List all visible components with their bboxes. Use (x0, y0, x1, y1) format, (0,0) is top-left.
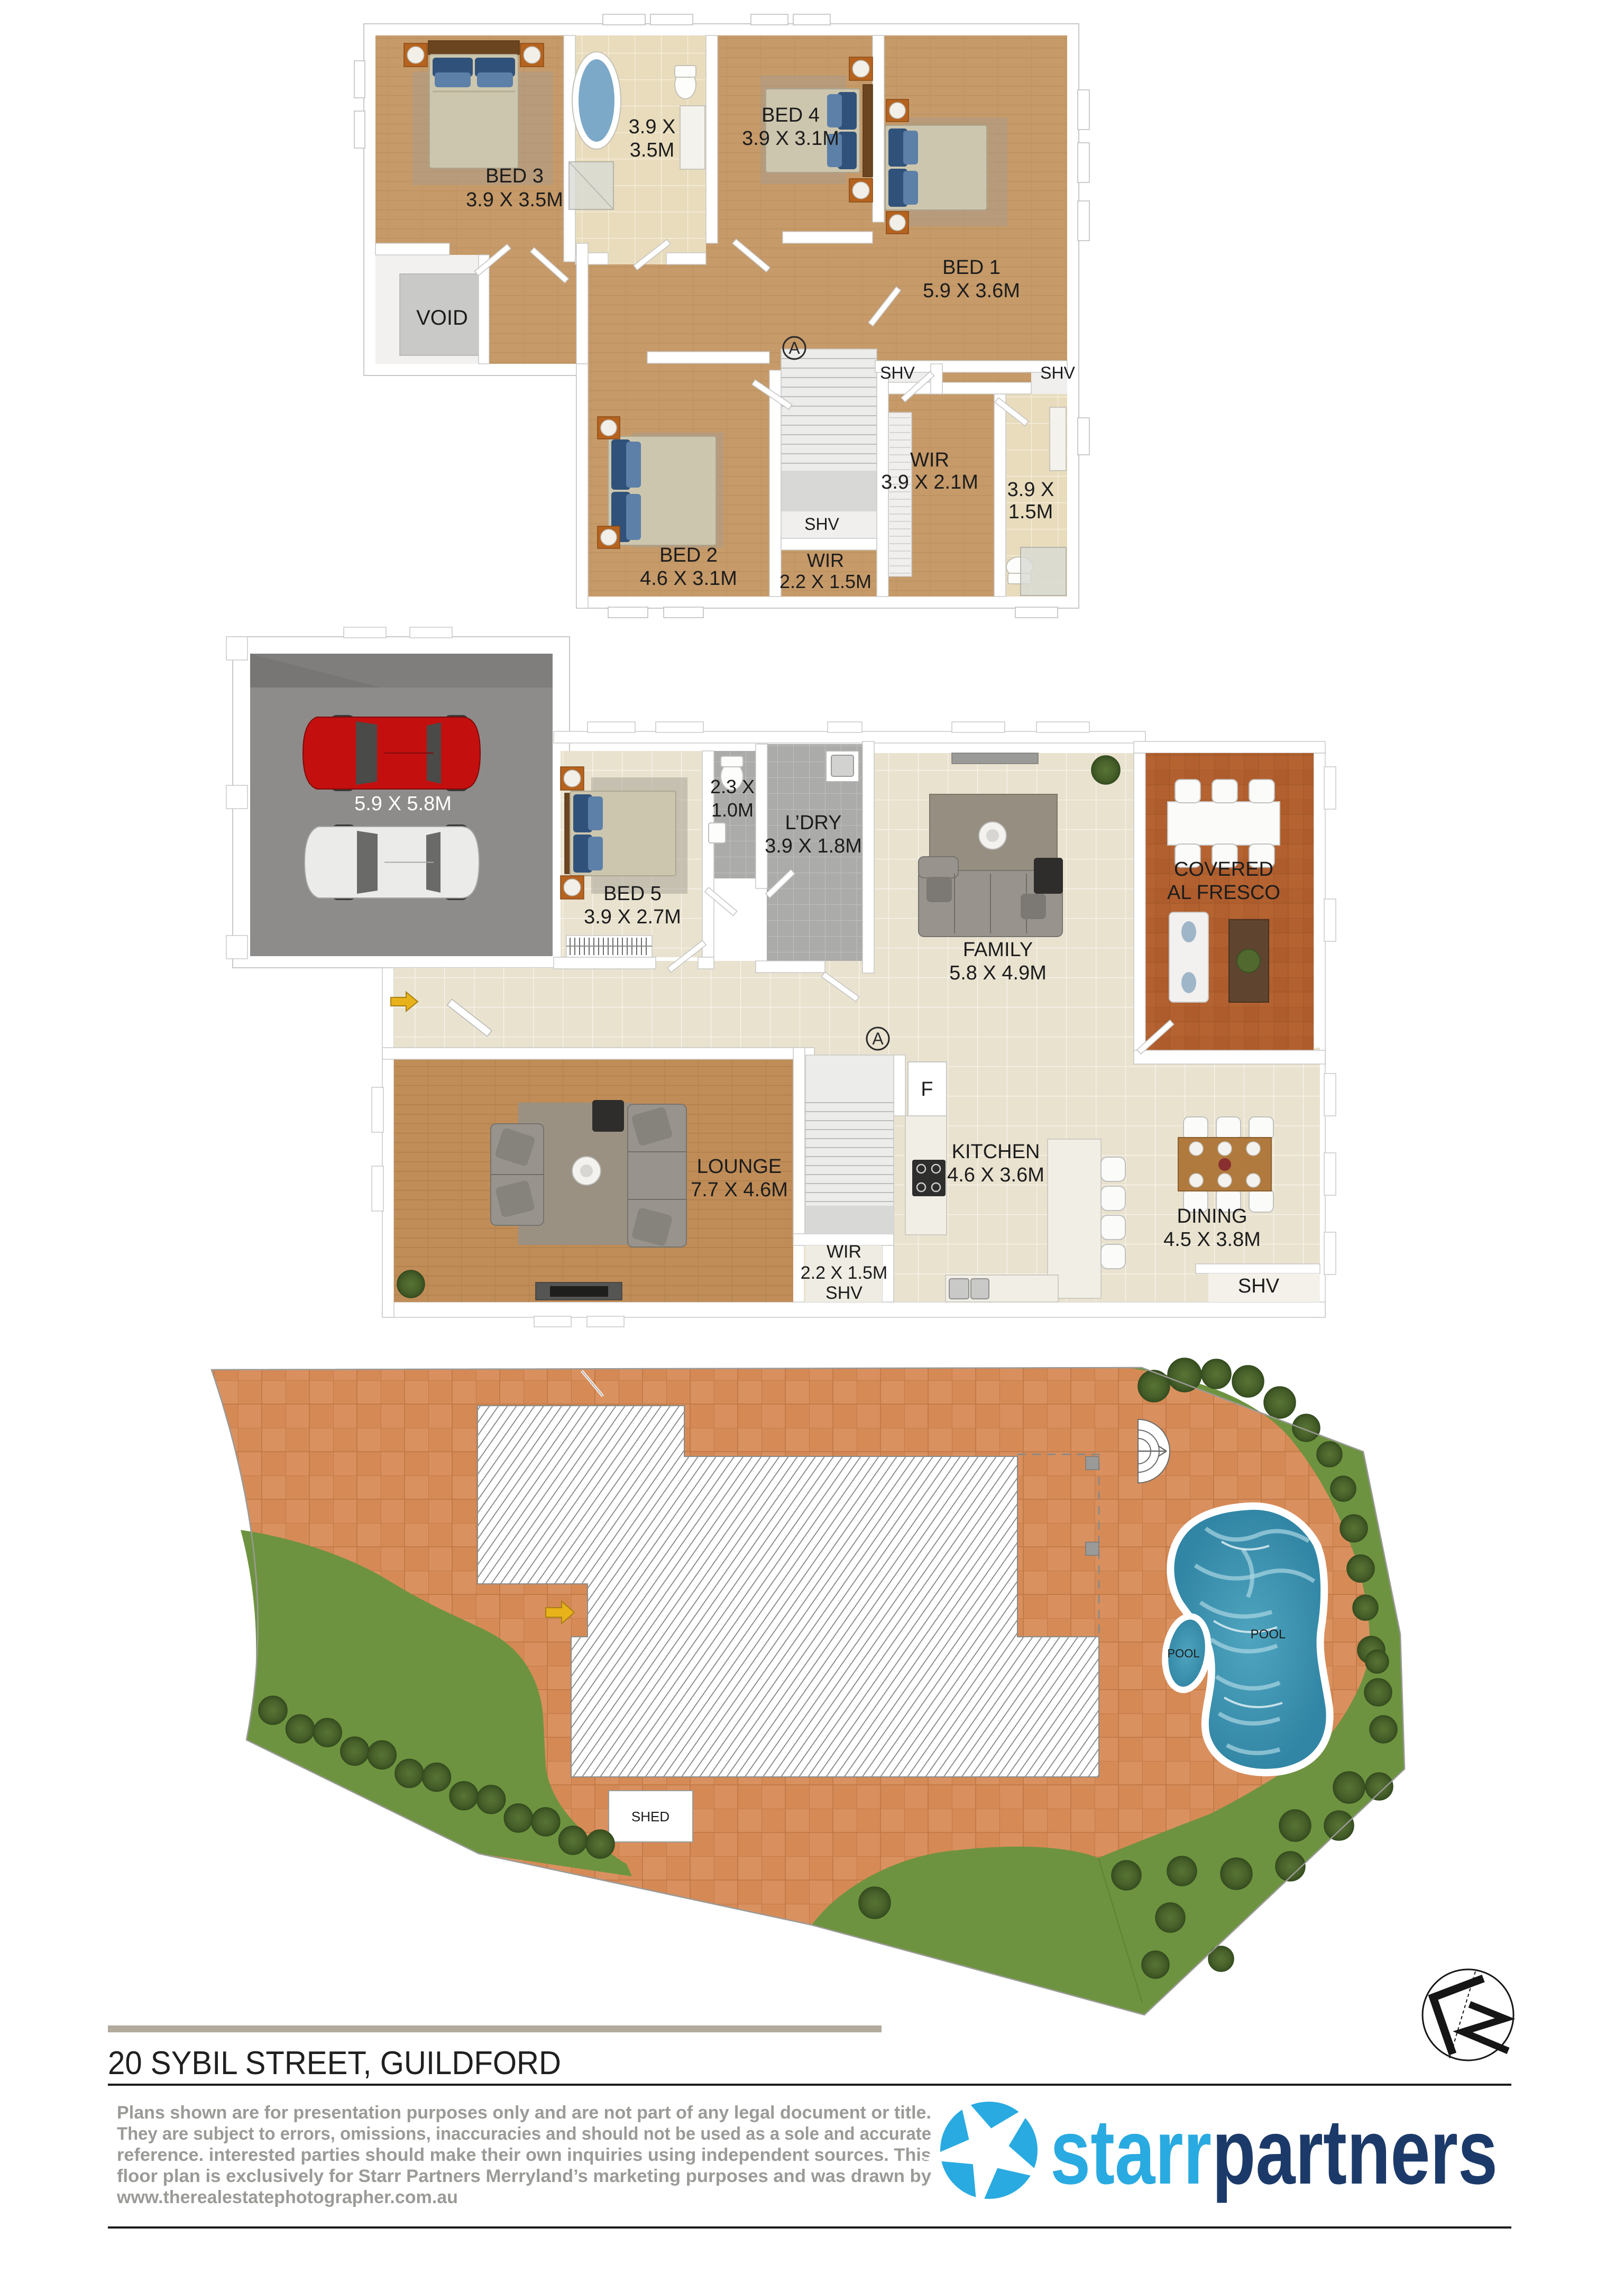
svg-text:2.2 X 1.5M: 2.2 X 1.5M (801, 1263, 887, 1283)
svg-text:3.9 X: 3.9 X (629, 116, 676, 138)
svg-text:SHED: SHED (631, 1809, 669, 1825)
svg-text:partners: partners (1212, 2101, 1498, 2204)
svg-text:3.9 X 3.5M: 3.9 X 3.5M (466, 189, 563, 211)
svg-text:VOID: VOID (416, 306, 468, 329)
svg-text:5.9 X 3.6M: 5.9 X 3.6M (923, 280, 1020, 302)
svg-text:20 SYBIL STREET, GUILDFORD: 20 SYBIL STREET, GUILDFORD (108, 2045, 561, 2082)
svg-text:1.0M: 1.0M (711, 799, 754, 821)
svg-text:KITCHEN: KITCHEN (952, 1141, 1040, 1163)
svg-text:BED 1: BED 1 (942, 256, 1001, 279)
svg-text:L’DRY: L’DRY (785, 812, 841, 834)
svg-text:5.9 X 5.8M: 5.9 X 5.8M (354, 793, 452, 815)
svg-text:3.9 X 2.1M: 3.9 X 2.1M (881, 471, 978, 493)
svg-text:They are subject to errors, om: They are subject to errors, omissions, i… (117, 2124, 931, 2144)
svg-text:www.therealestatephotographer.: www.therealestatephotographer.com.au (116, 2187, 458, 2207)
svg-text:BED 5: BED 5 (603, 883, 662, 905)
svg-text:2.2 X 1.5M: 2.2 X 1.5M (779, 571, 871, 592)
svg-text:3.9 X 1.8M: 3.9 X 1.8M (765, 835, 862, 857)
svg-text:SHV: SHV (1238, 1275, 1280, 1297)
svg-text:reference. interested partie: reference. interested parties should mak… (117, 2145, 931, 2165)
svg-text:WIR: WIR (807, 549, 844, 571)
svg-text:3.9 X 3.1M: 3.9 X 3.1M (742, 127, 839, 150)
svg-text:COVERED: COVERED (1174, 858, 1273, 881)
svg-text:2.3 X: 2.3 X (710, 776, 755, 797)
svg-text:SHV: SHV (825, 1283, 863, 1303)
svg-text:BED 4: BED 4 (761, 104, 820, 126)
svg-text:4.6 X 3.1M: 4.6 X 3.1M (640, 567, 737, 590)
svg-text:AL FRESCO: AL FRESCO (1167, 882, 1280, 904)
svg-text:4.5 X 3.8M: 4.5 X 3.8M (1163, 1228, 1261, 1251)
svg-text:3.9 X 2.7M: 3.9 X 2.7M (584, 906, 681, 928)
svg-text:WIR: WIR (910, 449, 949, 471)
svg-text:5.8 X 4.9M: 5.8 X 4.9M (949, 962, 1047, 984)
svg-text:POOL: POOL (1251, 1627, 1286, 1642)
svg-text:FAMILY: FAMILY (963, 939, 1033, 961)
svg-text:1.5M: 1.5M (1008, 501, 1053, 523)
svg-text:BED 3: BED 3 (485, 165, 544, 187)
svg-text:floor plan is exclusively for: floor plan is exclusively for Starr Part… (117, 2166, 931, 2186)
svg-text:WIR: WIR (827, 1242, 861, 1262)
svg-text:F: F (921, 1078, 933, 1101)
svg-text:4.6 X 3.6M: 4.6 X 3.6M (947, 1164, 1044, 1186)
svg-text:DINING: DINING (1177, 1205, 1247, 1227)
svg-text:LOUNGE: LOUNGE (697, 1156, 782, 1178)
svg-text:A: A (872, 1029, 884, 1048)
svg-text:SHV: SHV (804, 515, 839, 534)
svg-text:SHV: SHV (1040, 363, 1075, 382)
svg-text:3.9 X: 3.9 X (1007, 479, 1054, 501)
svg-text:Plans shown are for presentati: Plans shown are for presentation purpose… (117, 2103, 931, 2123)
svg-text:starr: starr (1050, 2101, 1212, 2204)
svg-text:BED 2: BED 2 (659, 544, 718, 566)
svg-text:7.7 X 4.6M: 7.7 X 4.6M (691, 1179, 788, 1201)
svg-text:3.5M: 3.5M (630, 139, 674, 161)
svg-text:POOL: POOL (1167, 1647, 1199, 1660)
svg-text:A: A (788, 338, 800, 357)
svg-text:SHV: SHV (880, 363, 915, 382)
